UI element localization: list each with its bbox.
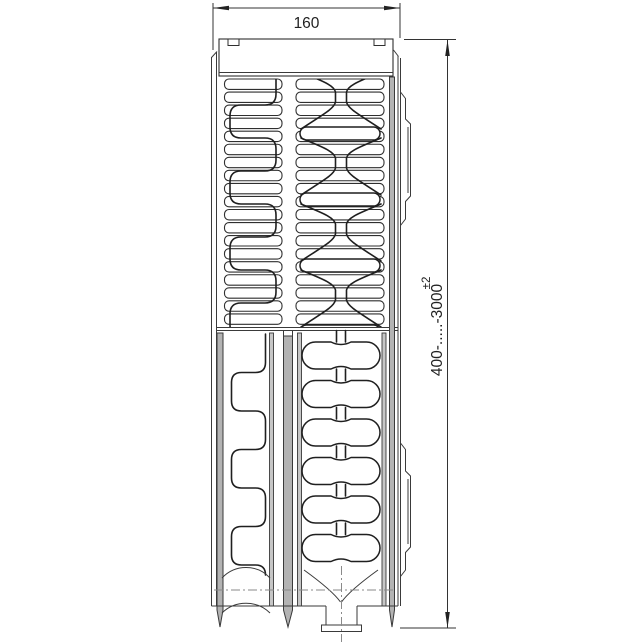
fin-bone-bar: [302, 535, 380, 562]
grille-slat: [296, 79, 384, 89]
fin-bone-bar: [302, 342, 380, 369]
back-water-channel: [390, 77, 395, 627]
lower-wall-bracket: [401, 443, 411, 577]
lower-left-convector-fin: [232, 334, 266, 575]
right-column-right-wall: [382, 333, 386, 606]
top-cap: [219, 39, 393, 76]
height-tolerance-label: ±2: [421, 277, 433, 290]
right-header-curve-left: [304, 570, 341, 602]
fin-bone-bar: [302, 496, 380, 523]
grille-slat: [225, 210, 283, 220]
radiator-body: [212, 39, 411, 642]
grille-slat: [296, 144, 384, 154]
grille-slat: [296, 314, 384, 324]
grille-slat: [225, 79, 283, 89]
bottom-connection: [212, 606, 399, 632]
grille-slat: [296, 275, 384, 285]
fin-bone-bar: [302, 458, 380, 485]
right-header-curve-right: [342, 570, 379, 602]
middle-channel-notch: [284, 331, 293, 337]
grille-slat: [296, 223, 384, 233]
fin-lens: [300, 259, 380, 272]
right-top-chamfer: [394, 50, 399, 57]
cap-clip-left: [228, 39, 239, 46]
fin-serpentine: [232, 334, 266, 575]
grille-slat: [296, 157, 384, 167]
right-column-left-wall: [298, 333, 302, 606]
middle-water-channel: [284, 336, 293, 627]
grille-slat: [225, 157, 283, 167]
grille-slat: [296, 210, 384, 220]
grille-slat: [225, 275, 283, 285]
grille-slat: [225, 288, 283, 298]
grille-slat: [225, 314, 283, 324]
fin-lens: [300, 193, 380, 206]
top-cap-outline: [219, 39, 393, 76]
grille-slat: [296, 92, 384, 102]
grille-slat: [296, 301, 384, 311]
fin-lens: [300, 127, 380, 140]
depth-dimension-label: 160: [294, 15, 320, 32]
arrowhead-up-icon: [445, 40, 450, 56]
fin-bone-bar: [302, 419, 380, 446]
fin-neck: [337, 523, 346, 535]
cap-clip-right: [374, 39, 385, 46]
fin-neck: [337, 408, 346, 420]
grille-slat: [225, 144, 283, 154]
fin-neck: [337, 446, 346, 458]
upper-wall-bracket: [401, 92, 411, 226]
grille-slat: [225, 170, 283, 180]
height-range-label: 400-.....-3000: [429, 284, 446, 377]
fin-neck: [337, 331, 346, 343]
radiator-diagram: 160 400-.....-3000 ±2: [0, 0, 643, 644]
grille-slat: [225, 183, 283, 193]
arrowhead-down-icon: [445, 612, 450, 628]
front-water-channel: [217, 333, 223, 627]
grille-bottom-rail: [217, 328, 399, 337]
fin-bone-bar: [302, 381, 380, 408]
mounting-brackets: [401, 92, 411, 577]
grille-slat: [225, 118, 283, 128]
grille-slat: [225, 249, 283, 259]
arrowhead-left-icon: [213, 6, 229, 11]
left-column-right-wall: [270, 333, 274, 606]
lower-right-convector-fin: [302, 331, 380, 562]
grille-slat: [296, 236, 384, 246]
fin-lens: [300, 325, 380, 338]
left-header-curve-lower: [222, 603, 270, 613]
fin-neck: [337, 485, 346, 497]
fin-neck: [337, 369, 346, 381]
left-header-curve-upper: [222, 568, 270, 579]
grille-slat: [296, 288, 384, 298]
arrowhead-right-icon: [384, 6, 400, 11]
radiator-technical-drawing: 160 400-.....-3000 ±2: [0, 0, 643, 644]
grille-slat: [296, 105, 384, 115]
grille-slat: [296, 170, 384, 180]
grille-slat: [225, 223, 283, 233]
